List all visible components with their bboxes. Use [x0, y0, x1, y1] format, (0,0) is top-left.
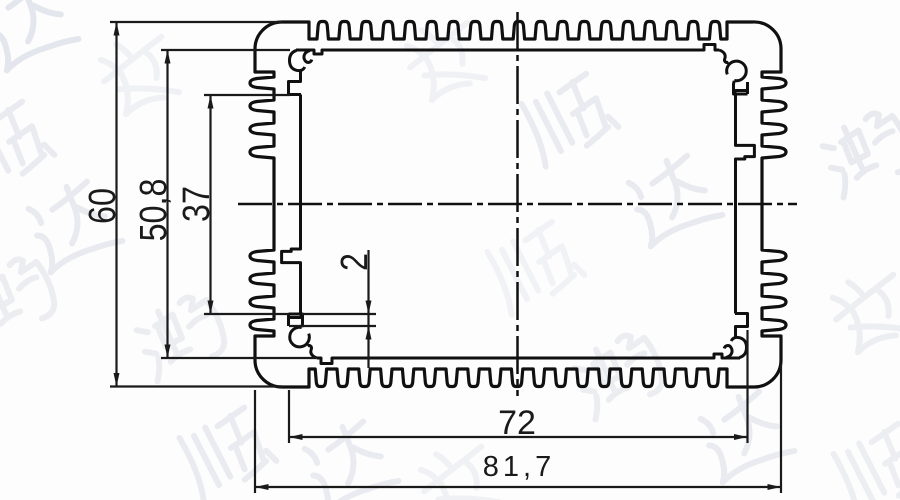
svg-text:81,7: 81,7 — [483, 451, 555, 483]
svg-text:60: 60 — [82, 188, 124, 224]
svg-text:72: 72 — [498, 404, 536, 442]
svg-text:2: 2 — [334, 253, 376, 271]
svg-text:37: 37 — [176, 186, 218, 222]
svg-text:50,8: 50,8 — [133, 179, 175, 242]
